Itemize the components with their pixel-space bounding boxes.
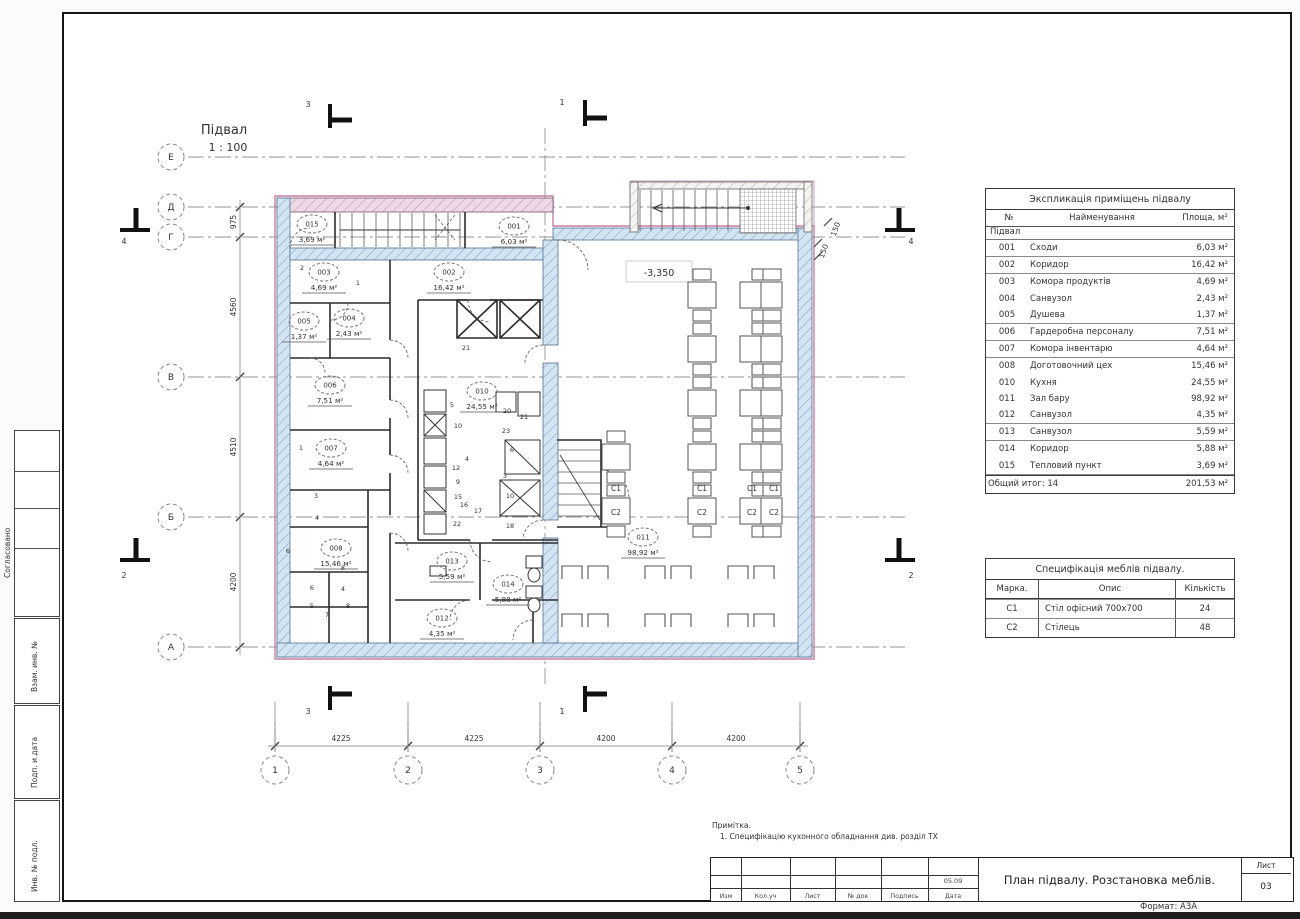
explication-cell: 98,92 м² bbox=[1166, 391, 1232, 407]
explication-cell: 005 bbox=[986, 307, 1028, 323]
explication-cell: 5,88 м² bbox=[1166, 441, 1232, 457]
explication-cell: 16,42 м² bbox=[1166, 257, 1232, 273]
note-title: Примітка. bbox=[712, 820, 938, 831]
explication-cell: 014 bbox=[986, 441, 1028, 457]
explication-cell: 015 bbox=[986, 458, 1028, 474]
explication-cell: 003 bbox=[986, 274, 1028, 290]
furniture-table-headers: Марка. Опис Кількість bbox=[986, 580, 1234, 599]
furniture-table-title: Специфікація меблів підвалу. bbox=[986, 559, 1234, 580]
explication-row: 010Кухня24,55 м² bbox=[986, 375, 1234, 391]
explication-cell: 2,43 м² bbox=[1166, 291, 1232, 307]
explication-cell: 6,03 м² bbox=[1166, 240, 1232, 256]
explication-cell: Зал бару bbox=[1028, 391, 1166, 407]
explication-cell: 008 bbox=[986, 358, 1028, 374]
explication-row: 011Зал бару98,92 м² bbox=[986, 391, 1234, 407]
drawing-title: План підвалу. Розстановка меблів. bbox=[978, 858, 1242, 901]
explication-row: 004Санвузол2,43 м² bbox=[986, 291, 1234, 307]
explication-row: 007Комора інвентарю4,64 м² bbox=[986, 341, 1234, 358]
side-label-inv: Инв. № подл. bbox=[30, 840, 39, 892]
explication-cell: 4,35 м² bbox=[1166, 407, 1232, 423]
explication-cell: 5,59 м² bbox=[1166, 424, 1232, 440]
explication-cell: 011 bbox=[986, 391, 1028, 407]
explication-cell: 012 bbox=[986, 407, 1028, 423]
tb-sheet-number: 03 bbox=[1241, 873, 1291, 892]
explication-cell: Коридор bbox=[1028, 257, 1166, 273]
furniture-cell: С2 bbox=[986, 619, 1039, 637]
explication-total-row: Общий итог: 14 201,53 м² bbox=[986, 475, 1234, 493]
explication-cell: 15,46 м² bbox=[1166, 358, 1232, 374]
furniture-spec-table: Специфікація меблів підвалу. Марка. Опис… bbox=[985, 558, 1235, 638]
col-header-area: Площа, м² bbox=[1172, 210, 1238, 226]
explication-row: 015Тепловий пункт3,69 м² bbox=[986, 458, 1234, 475]
tb-sheet-cell: Лист 03 bbox=[1241, 858, 1291, 901]
explication-row: 012Санвузол4,35 м² bbox=[986, 407, 1234, 424]
furniture-row: С1Стіл офісний 700х70024 bbox=[986, 599, 1234, 618]
side-label-podp: Подп. и дата bbox=[30, 737, 39, 788]
furniture-cell: Стілець bbox=[1039, 619, 1176, 637]
explication-cell: 001 bbox=[986, 240, 1028, 256]
col-header-qty: Кількість bbox=[1176, 580, 1234, 598]
explication-row: 008Доготовочний цех15,46 м² bbox=[986, 358, 1234, 374]
explication-title: Экспликація приміщень підвалу bbox=[986, 189, 1234, 210]
note-block: Примітка. 1. Специфікацію кухонного обла… bbox=[712, 820, 938, 842]
explication-cell: Коридор bbox=[1028, 441, 1166, 457]
tb-sheet-label: Лист bbox=[1241, 858, 1291, 870]
furniture-table-rows: С1Стіл офісний 700х70024С2Стілець48 bbox=[986, 599, 1234, 637]
explication-cell: Тепловий пункт bbox=[1028, 458, 1166, 474]
explication-cell: Комора інвентарю bbox=[1028, 341, 1166, 357]
explication-cell: Санвузол bbox=[1028, 424, 1166, 440]
explication-cell: 006 bbox=[986, 324, 1028, 340]
explication-cell: 1,37 м² bbox=[1166, 307, 1232, 323]
explication-cell: Санвузол bbox=[1028, 291, 1166, 307]
tb-date: 05.09 bbox=[928, 877, 978, 885]
explication-row: 001Сходи6,03 м² bbox=[986, 240, 1234, 257]
explication-cell: 002 bbox=[986, 257, 1028, 273]
explication-cell: 3,69 м² bbox=[1166, 458, 1232, 474]
col-header-desc: Опис bbox=[1039, 580, 1176, 598]
total-area: 201,53 м² bbox=[1166, 476, 1232, 493]
tb-col-data: 05.09 Дата bbox=[928, 858, 979, 901]
explication-cell: Санвузол bbox=[1028, 407, 1166, 423]
col-header-name: Найменування bbox=[1032, 210, 1172, 226]
col-header-number: № bbox=[986, 210, 1032, 226]
explication-row: 002Коридор16,42 м² bbox=[986, 257, 1234, 274]
total-label: Общий итог: 14 bbox=[986, 476, 1166, 493]
explication-cell: 007 bbox=[986, 341, 1028, 357]
explication-group-label: Підвал bbox=[986, 227, 1234, 240]
side-label-soglasovano: Согласовано bbox=[3, 528, 12, 578]
side-box-soglasovano bbox=[14, 430, 60, 617]
page-bottom-bar bbox=[0, 912, 1300, 919]
tb-col-izm: Изм bbox=[711, 858, 742, 901]
furniture-row: С2Стілець48 bbox=[986, 618, 1234, 637]
furniture-cell: 24 bbox=[1176, 600, 1234, 618]
explication-cell: Доготовочний цех bbox=[1028, 358, 1166, 374]
explication-table: Экспликація приміщень підвалу № Найменув… bbox=[985, 188, 1235, 494]
explication-cell: Сходи bbox=[1028, 240, 1166, 256]
explication-row: 005Душева1,37 м² bbox=[986, 307, 1234, 324]
tb-col-ndoc: № док bbox=[835, 858, 882, 901]
furniture-cell: 48 bbox=[1176, 619, 1234, 637]
explication-cell: 4,64 м² bbox=[1166, 341, 1232, 357]
furniture-cell: С1 bbox=[986, 600, 1039, 618]
explication-cell: Душева bbox=[1028, 307, 1166, 323]
note-line: 1. Специфікацію кухонного обладнання див… bbox=[712, 831, 938, 842]
explication-cell: 010 bbox=[986, 375, 1028, 391]
explication-row: 003Комора продуктів4,69 м² bbox=[986, 274, 1234, 290]
side-label-vzam: Взам. инв. № bbox=[30, 641, 39, 692]
explication-rows: 001Сходи6,03 м²002Коридор16,42 м²003Комо… bbox=[986, 240, 1234, 475]
explication-cell: 24,55 м² bbox=[1166, 375, 1232, 391]
explication-row: 013Санвузол5,59 м² bbox=[986, 424, 1234, 441]
tb-col-list: Лист bbox=[790, 858, 836, 901]
explication-cell: 4,69 м² bbox=[1166, 274, 1232, 290]
explication-cell: 013 bbox=[986, 424, 1028, 440]
format-label: Формат: А3А bbox=[1140, 902, 1197, 912]
col-header-mark: Марка. bbox=[986, 580, 1039, 598]
explication-cell: Комора продуктів bbox=[1028, 274, 1166, 290]
tb-col-podpis: Подпись bbox=[881, 858, 929, 901]
explication-row: 014Коридор5,88 м² bbox=[986, 441, 1234, 457]
explication-cell: Гардеробна персоналу bbox=[1028, 324, 1166, 340]
explication-row: 006Гардеробна персоналу7,51 м² bbox=[986, 324, 1234, 341]
title-block: Изм Кол.уч Лист № док Подпись 05.09 Дата… bbox=[710, 857, 1294, 902]
explication-headers: № Найменування Площа, м² bbox=[986, 210, 1234, 227]
explication-cell: 004 bbox=[986, 291, 1028, 307]
explication-cell: Кухня bbox=[1028, 375, 1166, 391]
explication-cell: 7,51 м² bbox=[1166, 324, 1232, 340]
furniture-cell: Стіл офісний 700х700 bbox=[1039, 600, 1176, 618]
tb-col-koluch: Кол.уч bbox=[741, 858, 791, 901]
